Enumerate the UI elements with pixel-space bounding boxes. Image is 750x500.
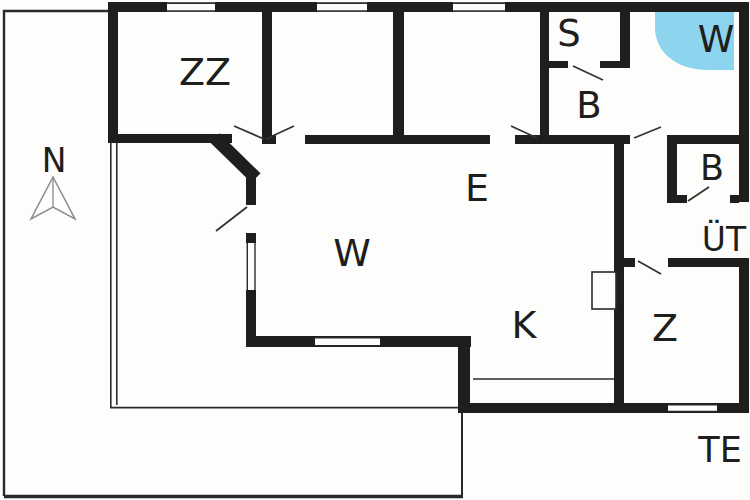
- floor-plan: N ZZ S W B B ÜT E W K Z TE: [0, 0, 750, 500]
- door-sauna: [573, 66, 603, 80]
- terrace-edge: [110, 142, 461, 408]
- wall-divider-2: [393, 10, 404, 143]
- wall-right-lower: [739, 267, 749, 413]
- door-zz: [234, 126, 264, 139]
- wall-living-left-a: [246, 174, 256, 205]
- room-label-whirlpool: W: [698, 18, 735, 61]
- compass-label: N: [42, 141, 67, 180]
- room-label-sauna: S: [557, 12, 581, 55]
- room-label-terrace: TE: [697, 430, 742, 470]
- room-label-entry: E: [465, 166, 489, 210]
- wall-wc-left: [667, 135, 677, 203]
- room-label-kitchen: K: [512, 303, 538, 347]
- door-swings: [216, 66, 709, 274]
- wall-bath-left: [540, 2, 549, 143]
- room-label-wc: B: [700, 148, 724, 188]
- room-label-bathroom: B: [576, 84, 601, 127]
- window-living-left: [247, 243, 256, 290]
- compass: N: [31, 141, 75, 219]
- wall-left-upper: [108, 2, 118, 142]
- fireplace-fixture: [592, 272, 616, 309]
- wall-ut-bottom: [668, 258, 749, 267]
- door-wc: [688, 187, 709, 201]
- floor-plan-canvas: N ZZ S W B B ÜT E W K Z TE: [0, 0, 750, 500]
- room-label-covered-terrace: ÜT: [702, 219, 747, 259]
- door-bathroom: [634, 127, 661, 138]
- door-z: [638, 261, 661, 274]
- wall-right-upper: [739, 2, 749, 202]
- window-top-3: [453, 3, 505, 12]
- windows: [167, 3, 717, 413]
- wall-wc-bottom-a: [667, 195, 687, 203]
- window-top-1: [167, 3, 215, 12]
- wall-living-left-b: [246, 233, 256, 243]
- room-label-bedroom-zz: ZZ: [179, 50, 231, 94]
- wall-diagonal: [215, 138, 256, 178]
- wall-kitchen-jog: [458, 345, 470, 405]
- wall-wc-top: [667, 135, 739, 144]
- wall-divider-1: [262, 10, 272, 143]
- window-bottom-z: [668, 404, 717, 412]
- wall-sauna-bottom-a: [540, 61, 568, 68]
- window-living-bottom: [315, 337, 380, 346]
- room-label-living-room: W: [333, 231, 371, 275]
- door-terrace: [216, 207, 247, 231]
- wall-wc-bottom-b: [730, 195, 739, 203]
- room-label-room-z: Z: [652, 306, 678, 350]
- wall-sauna-right: [620, 10, 630, 68]
- window-top-2: [317, 3, 367, 12]
